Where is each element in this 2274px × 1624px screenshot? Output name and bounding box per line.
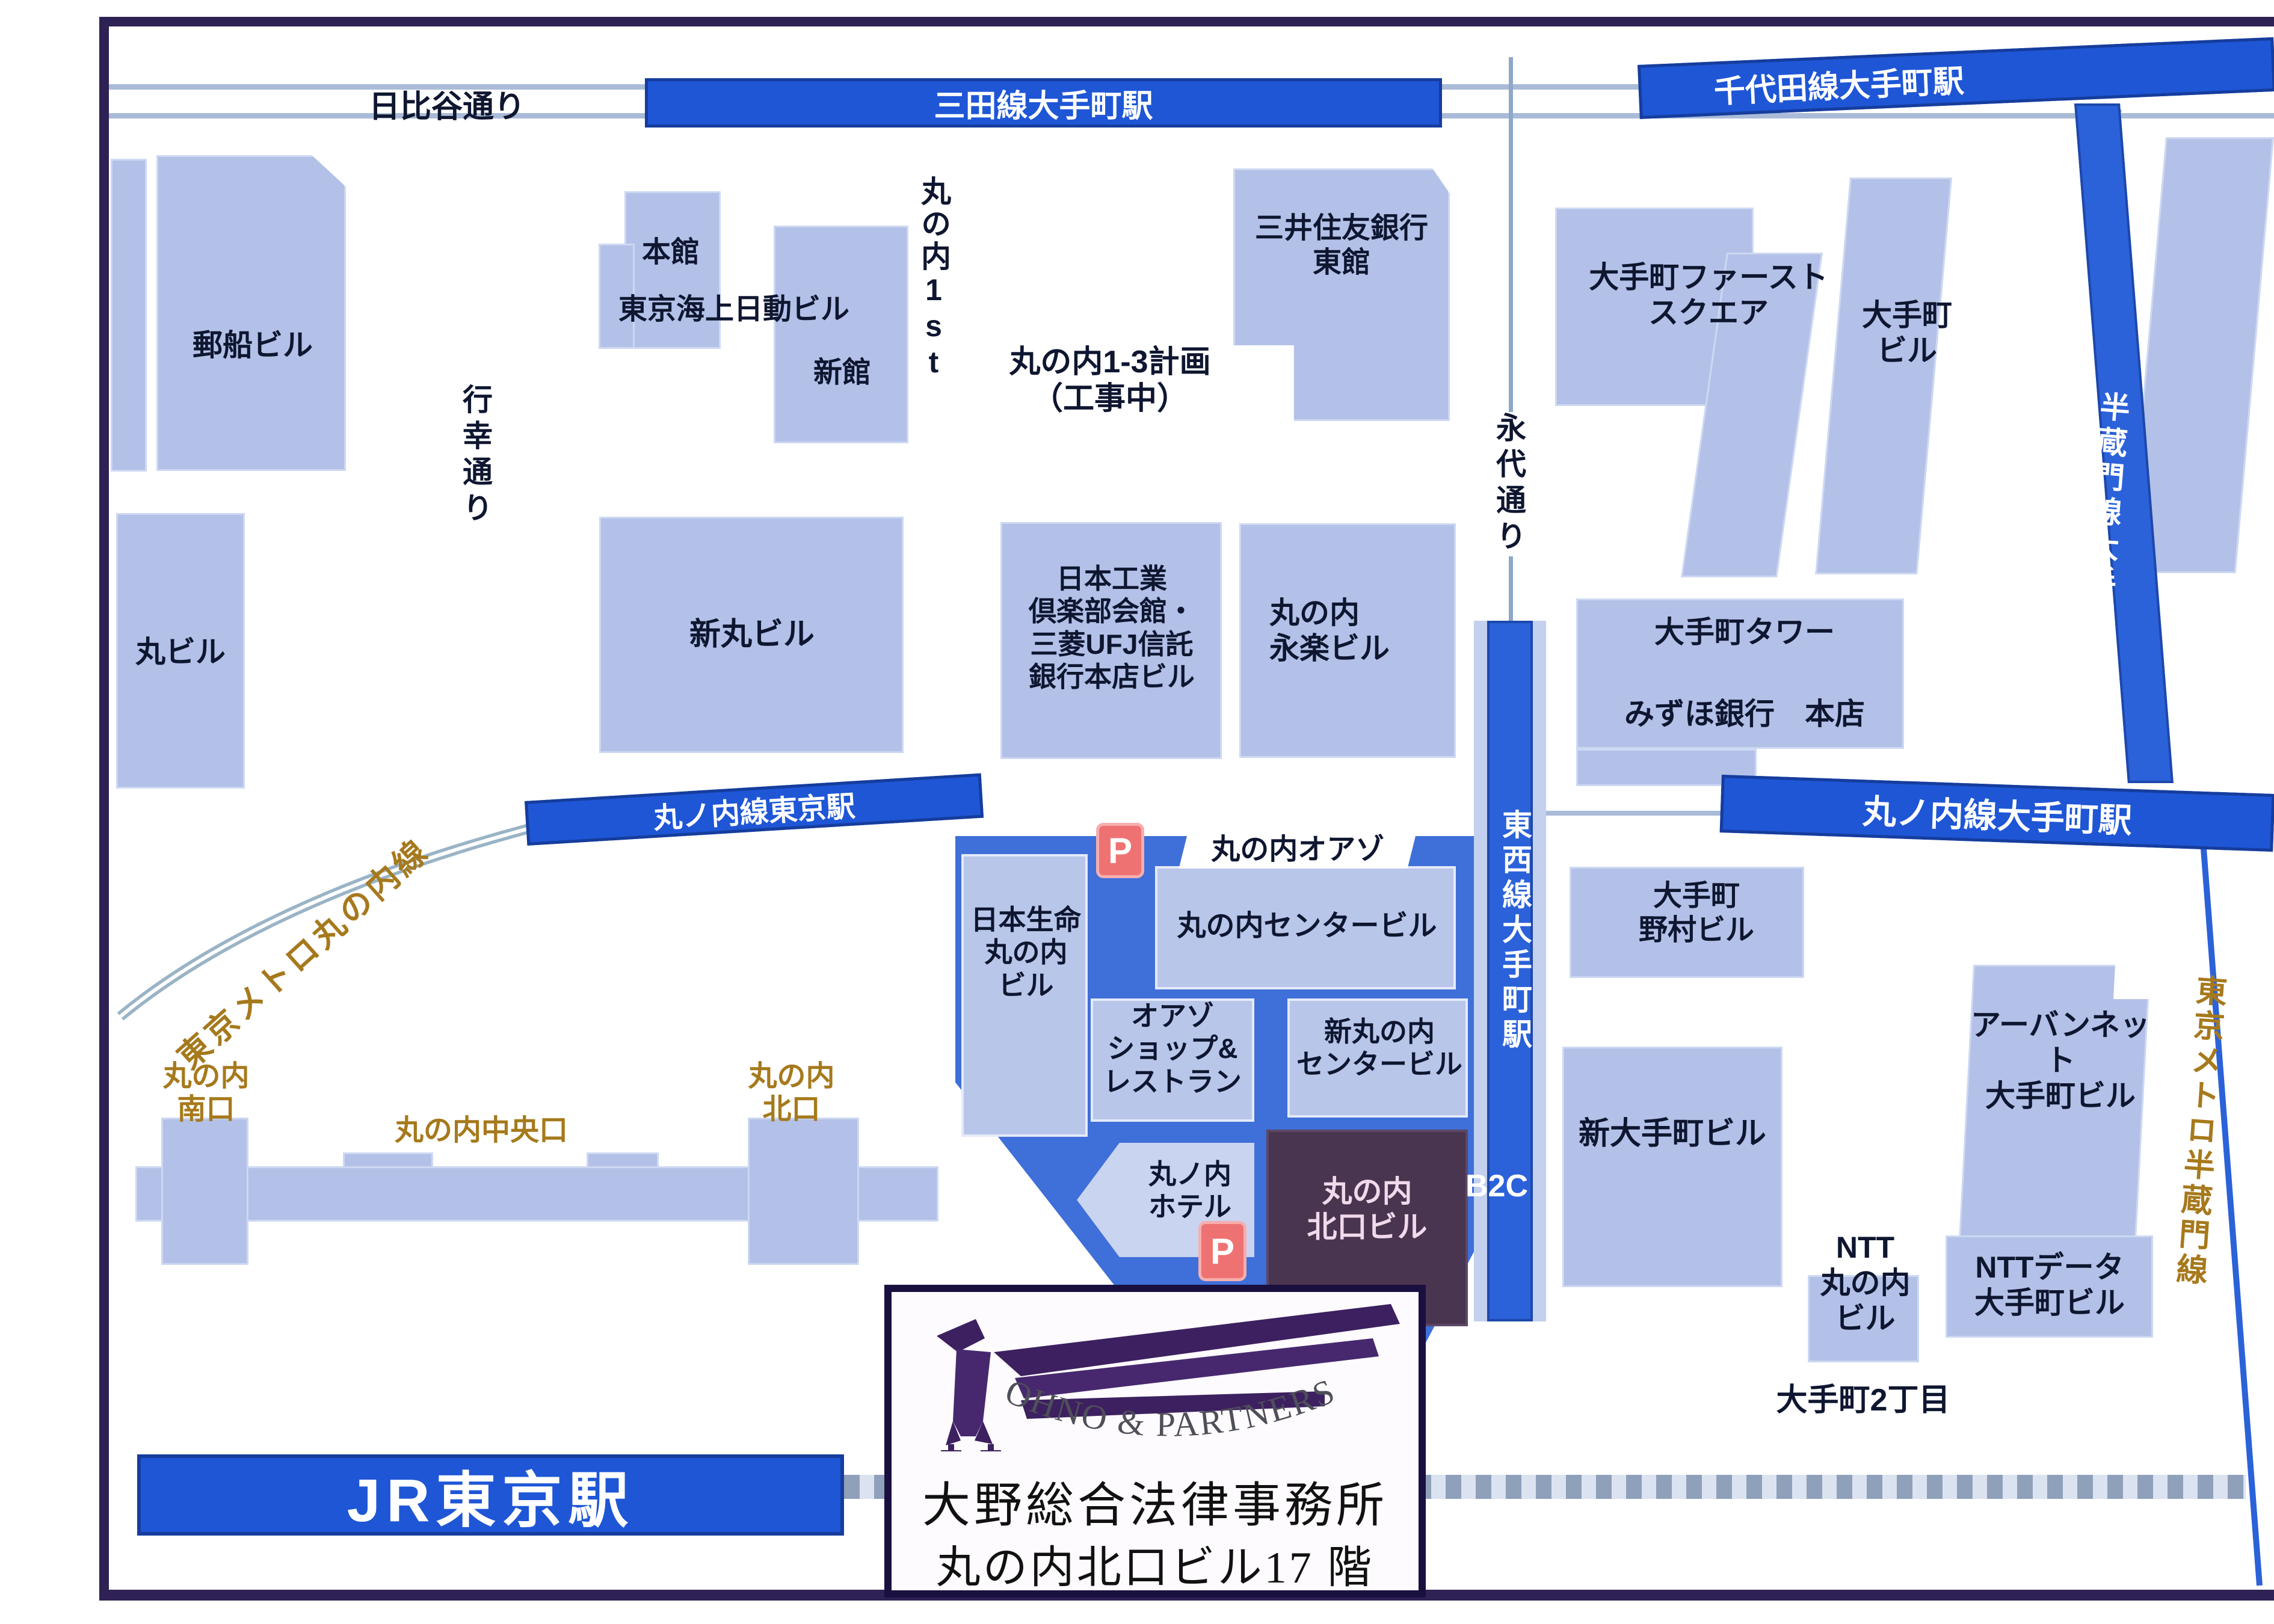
building-shinkan: [774, 226, 908, 443]
chiyoda-line-otemachi-label: 千代田線大手町駅: [1713, 55, 1965, 111]
parking-letter: P: [1210, 1231, 1234, 1272]
otemachi-bldg-label: 大手町 ビル: [1859, 298, 1955, 369]
mizuho-label: みずほ銀行 本店: [1594, 697, 1895, 732]
hibiya-dori-label: 日比谷通り: [360, 89, 534, 126]
shin-otemachi-label: 新大手町ビル: [1555, 1116, 1790, 1152]
eiraku-label: 丸の内 永楽ビル: [1269, 595, 1420, 666]
b2c-exit-label: B2C: [1449, 1168, 1545, 1205]
access-map: 三田線大手町駅 千代田線大手町駅 半蔵門線大手町駅 東西線大手町駅 丸ノ内線東京…: [0, 0, 2274, 1624]
gyoko-dori-label: 行幸通り: [457, 384, 493, 528]
jr-platform-bump-1: [343, 1152, 433, 1168]
marunouchi-1st-label: 丸の内1st: [916, 176, 951, 381]
parking-icon-south: P: [1198, 1221, 1246, 1281]
hotel-label: 丸ノ内 ホテル: [1130, 1158, 1250, 1223]
oazo-label-strip: 丸の内オアゾ: [1179, 831, 1417, 869]
exit-marunouchi-central: 丸の内中央口: [361, 1114, 602, 1147]
kogyo-club-label: 日本工業 倶楽部会館・ 三菱UFJ信託 銀行本店ビル: [1009, 562, 1214, 693]
map-frame-left: [99, 17, 109, 1601]
urbannet-label: アーバンネット 大手町ビル: [1958, 1007, 2163, 1114]
marunouchi-line-otemachi-label: 丸ノ内線大手町駅: [1862, 784, 2133, 843]
marubiru-label: 丸ビル: [129, 635, 232, 670]
ntt-marunouchi-label: NTT 丸の内 ビル: [1810, 1230, 1921, 1336]
firm-logo-box: OHNO & PARTNERS 大野総合法律事務所 丸の内北口ビル17 階: [884, 1285, 1426, 1598]
center-bldg-label: 丸の内センタービル: [1164, 909, 1450, 944]
tokio-marine-label: 東京海上日動ビル: [587, 293, 881, 327]
jr-tokyo-station-label: JR東京駅: [347, 1451, 635, 1539]
hanzomon-line-south: [2203, 841, 2260, 1586]
shin-center-bldg-label: 新丸の内 センタービル: [1292, 1015, 1467, 1081]
ntt-data-label: NTTデータ 大手町ビル: [1950, 1250, 2149, 1321]
otemachi-first-square-label: 大手町ファースト スクエア: [1573, 260, 1844, 331]
firm-name-jp: 大野総合法律事務所: [892, 1466, 1419, 1536]
oazo-label: 丸の内オアゾ: [1211, 833, 1384, 867]
jr-platform-bump-2: [587, 1152, 659, 1168]
kitaguchi-label: 丸の内 北口ビル: [1275, 1174, 1459, 1245]
honkan-label: 本館: [635, 236, 707, 270]
tozai-line-otemachi-label: 東西線大手町駅: [1493, 809, 1536, 1053]
marunouchi-13-plan-label: 丸の内1-3計画 （工事中）: [972, 344, 1248, 418]
map-frame-top: [99, 17, 2274, 26]
oazo-shop-label: オアゾ ショップ& レストラン: [1094, 1000, 1251, 1098]
otemachi-2chome-label: 大手町2丁目: [1752, 1382, 1974, 1419]
firm-location: 丸の内北口ビル17 階: [892, 1531, 1419, 1596]
svg-text:OHNO & PARTNERS: OHNO & PARTNERS: [1000, 1371, 1341, 1444]
jr-platform-south-stub: [161, 1118, 248, 1265]
mita-line-otemachi-label: 三田線大手町駅: [934, 81, 1153, 126]
parking-letter: P: [1108, 830, 1132, 872]
exit-marunouchi-south: 丸の内 南口: [135, 1060, 277, 1126]
exit-marunouchi-north: 丸の内 北口: [721, 1060, 862, 1126]
firm-name-en: OHNO & PARTNERS: [1000, 1371, 1341, 1444]
building-yusen: [156, 155, 346, 471]
otemachi-tower-label: 大手町タワー: [1624, 615, 1865, 650]
shin-marubiru-label: 新丸ビル: [680, 617, 824, 653]
smbc-east-label: 三井住友銀行 東館: [1236, 212, 1447, 280]
building-shin-otemachi: [1562, 1047, 1783, 1287]
parking-icon-north: P: [1096, 823, 1144, 878]
jr-tokyo-station-bar: JR東京駅: [137, 1454, 844, 1536]
building-strip-west: [111, 159, 147, 472]
eitai-dori-label: 永代通り: [1491, 412, 1526, 556]
jr-platform-north-stub: [748, 1118, 859, 1265]
tozai-band-strip-west: [1474, 621, 1487, 1321]
nissei-label: 日本生命 丸の内 ビル: [967, 903, 1085, 1001]
nomura-label: 大手町 野村ビル: [1618, 879, 1775, 947]
shinkan-label: 新館: [803, 356, 881, 390]
mita-line-otemachi-bar: 三田線大手町駅: [645, 78, 1442, 128]
yusen-label: 郵船ビル: [165, 328, 340, 363]
